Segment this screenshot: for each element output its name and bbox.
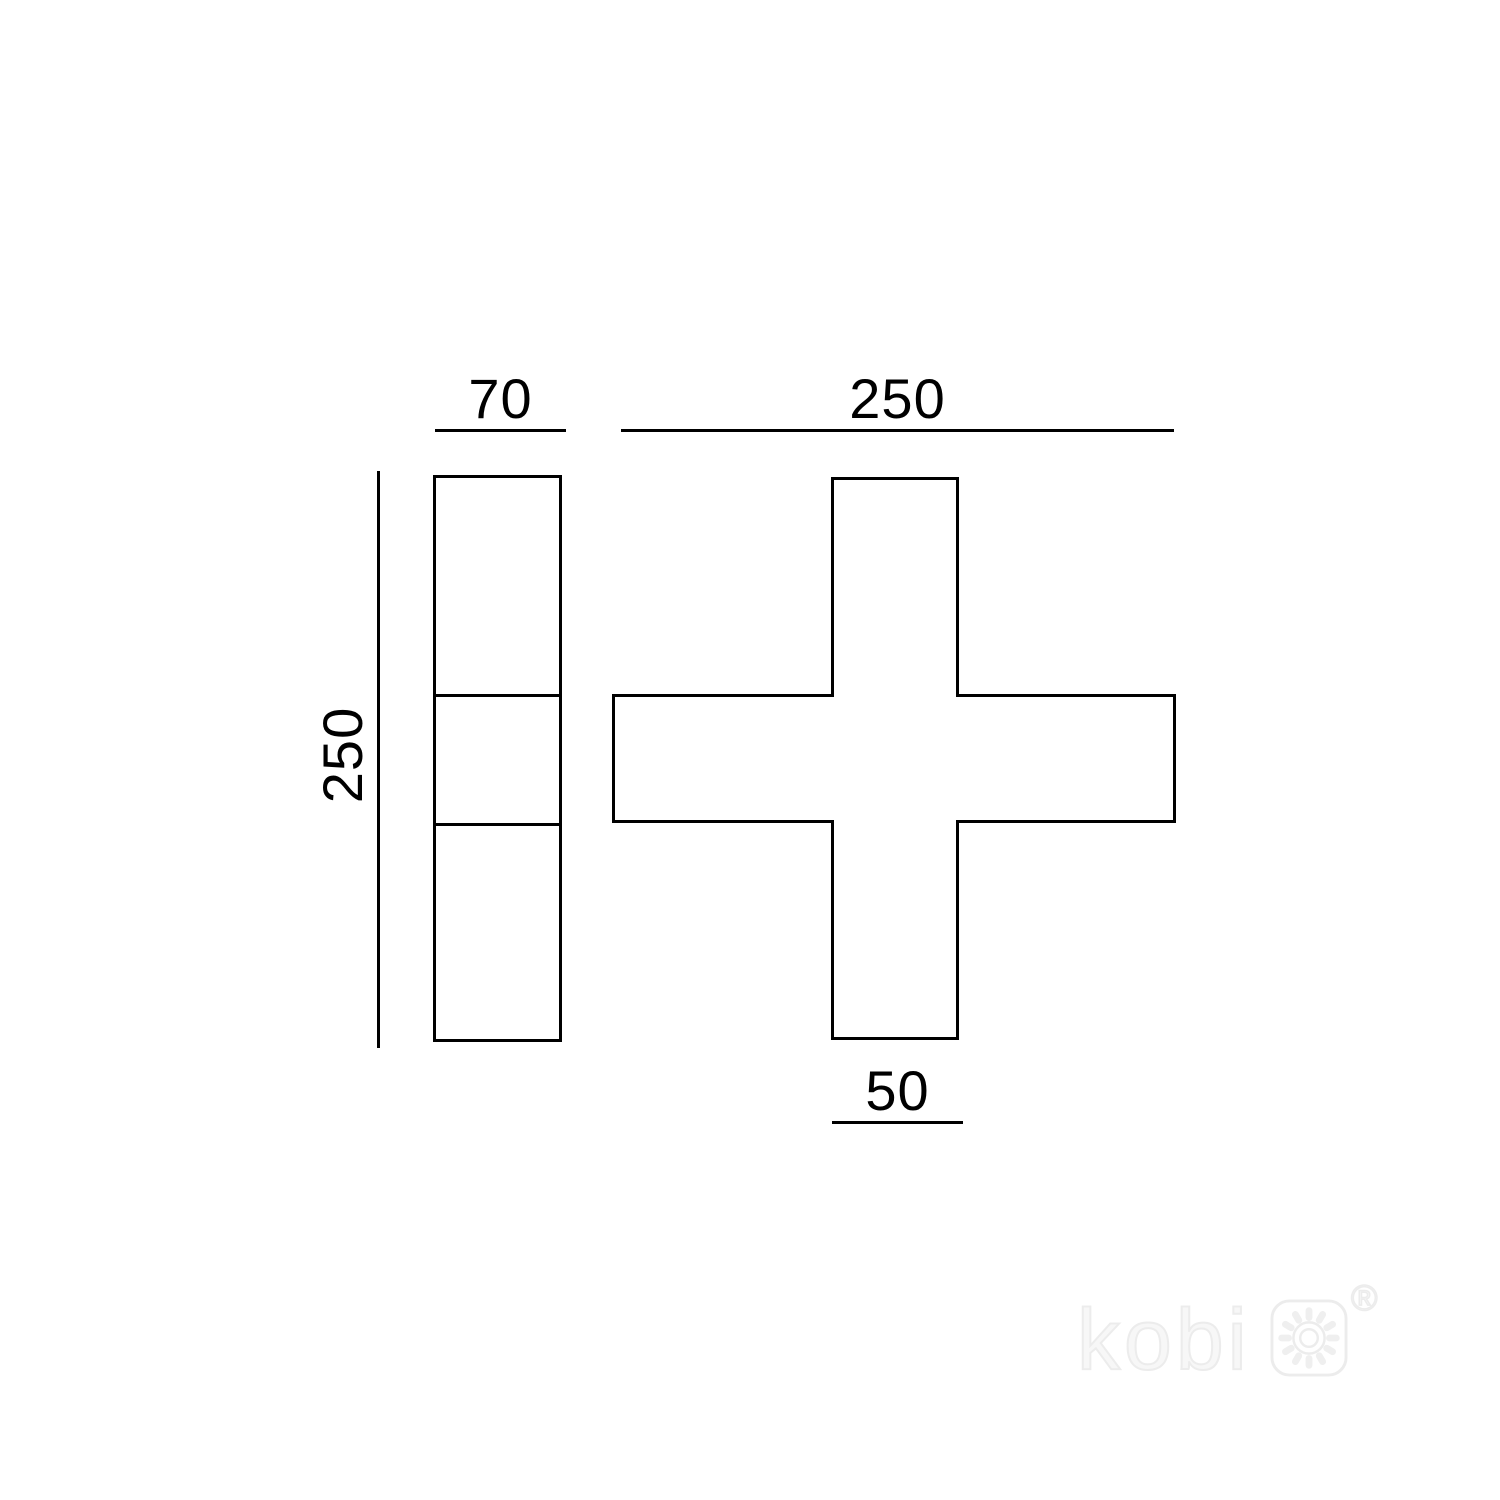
dimension-label-arm-width: 50 <box>832 1063 963 1119</box>
drawing-linework <box>0 0 1500 1500</box>
brand-name-text: kobi <box>1077 1297 1251 1383</box>
dimension-label-side-width: 70 <box>435 371 566 427</box>
brand-watermark: kobi ® <box>1075 1276 1395 1386</box>
dimension-label-overall-width: 250 <box>621 371 1174 427</box>
side-view-outline <box>435 477 561 1041</box>
sun-icon <box>1270 1299 1348 1377</box>
front-view-cross-outline <box>614 479 1175 1039</box>
dimension-label-overall-height: 250 <box>315 675 371 835</box>
technical-drawing-canvas: 70 250 250 50 kobi ® <box>0 0 1500 1500</box>
registered-trademark-symbol: ® <box>1351 1280 1378 1316</box>
